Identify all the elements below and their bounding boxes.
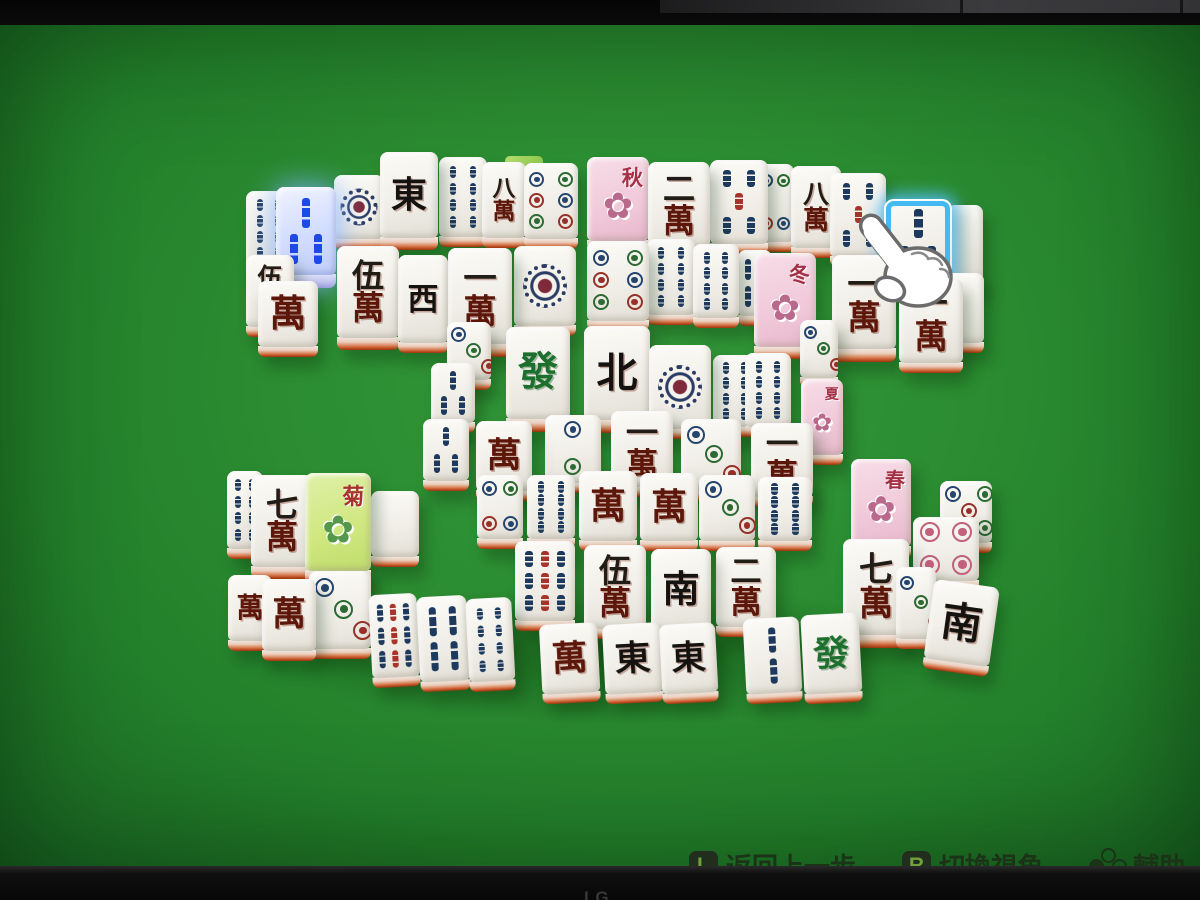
monitor-photo: 東八萬秋✿二萬八萬伍萬萬伍萬西一萬冬✿一萬一萬發北萬一萬一萬夏✿七萬菊✿萬萬春✿… bbox=[0, 0, 1200, 900]
monitor-top-bezel bbox=[0, 0, 1200, 25]
mahjong-tile[interactable] bbox=[699, 475, 755, 552]
game-screen: 東八萬秋✿二萬八萬伍萬萬伍萬西一萬冬✿一萬一萬發北萬一萬一萬夏✿七萬菊✿萬萬春✿… bbox=[0, 25, 1200, 866]
tile-side bbox=[647, 314, 695, 325]
mahjong-tile[interactable] bbox=[693, 244, 739, 329]
flower-art-icon: ✿ bbox=[603, 185, 633, 227]
tile-side bbox=[423, 480, 469, 491]
flower-art-icon: ✿ bbox=[812, 409, 832, 438]
mahjong-tile[interactable]: 萬 bbox=[539, 622, 601, 705]
monitor-bottom-bezel: LG bbox=[0, 866, 1200, 900]
mahjong-tile[interactable]: 發 bbox=[800, 612, 863, 705]
tile-side bbox=[337, 337, 399, 350]
tile-side bbox=[439, 236, 487, 247]
mahjong-tile[interactable]: 菊✿ bbox=[305, 473, 371, 585]
hand-cursor-icon bbox=[846, 209, 968, 322]
mahjong-tile[interactable]: 南 bbox=[922, 579, 1000, 678]
mahjong-tile[interactable]: 八萬 bbox=[482, 162, 526, 249]
tile-side bbox=[309, 648, 371, 659]
mahjong-tile[interactable] bbox=[758, 477, 812, 552]
mahjong-tile[interactable] bbox=[710, 160, 768, 255]
tile-side bbox=[262, 650, 316, 661]
mahjong-tile[interactable] bbox=[309, 571, 371, 660]
mahjong-tile[interactable]: 西 bbox=[398, 255, 448, 354]
tile-side bbox=[371, 556, 419, 567]
mahjong-tile[interactable] bbox=[647, 239, 695, 326]
mahjong-tile[interactable] bbox=[477, 475, 523, 550]
mahjong-tile[interactable] bbox=[515, 541, 575, 632]
mahjong-tile[interactable] bbox=[416, 595, 471, 694]
flower-art-icon: ✿ bbox=[770, 287, 800, 329]
mahjong-tile[interactable] bbox=[439, 157, 487, 248]
mahjong-tile[interactable] bbox=[743, 616, 803, 705]
mahjong-tile[interactable]: 萬 bbox=[258, 281, 318, 358]
mahjong-tile[interactable]: 萬 bbox=[262, 579, 316, 662]
mahjong-tile[interactable] bbox=[334, 175, 384, 250]
mahjong-tile[interactable] bbox=[465, 597, 516, 693]
mahjong-tile[interactable]: 秋✿ bbox=[587, 157, 649, 252]
tile-side bbox=[693, 317, 739, 328]
tile-side bbox=[832, 348, 896, 362]
mahjong-tile[interactable] bbox=[368, 593, 421, 689]
mahjong-tile[interactable] bbox=[514, 246, 576, 337]
tile-side bbox=[398, 342, 448, 353]
flower-art-icon: ✿ bbox=[322, 507, 354, 552]
mahjong-tile[interactable]: 伍萬 bbox=[337, 246, 399, 351]
tile-side bbox=[258, 346, 318, 357]
wall-background bbox=[660, 0, 1200, 13]
mahjong-tile[interactable]: 萬 bbox=[640, 473, 698, 552]
mahjong-tile[interactable]: 萬 bbox=[579, 471, 637, 552]
mahjong-tile[interactable] bbox=[423, 419, 469, 492]
mahjong-tile[interactable]: 東 bbox=[659, 622, 719, 705]
mahjong-tile[interactable] bbox=[371, 491, 419, 568]
mahjong-tile[interactable]: 東 bbox=[602, 622, 664, 705]
mahjong-tile[interactable] bbox=[527, 475, 575, 550]
lg-logo: LG bbox=[584, 888, 610, 900]
mahjong-tile[interactable]: 七萬 bbox=[251, 475, 313, 580]
mahjong-tile[interactable]: 東 bbox=[380, 152, 438, 251]
flower-art-icon: ✿ bbox=[866, 490, 895, 530]
tile-side bbox=[899, 362, 963, 373]
mahjong-tile[interactable] bbox=[524, 163, 578, 250]
mahjong-tile[interactable] bbox=[587, 241, 649, 332]
